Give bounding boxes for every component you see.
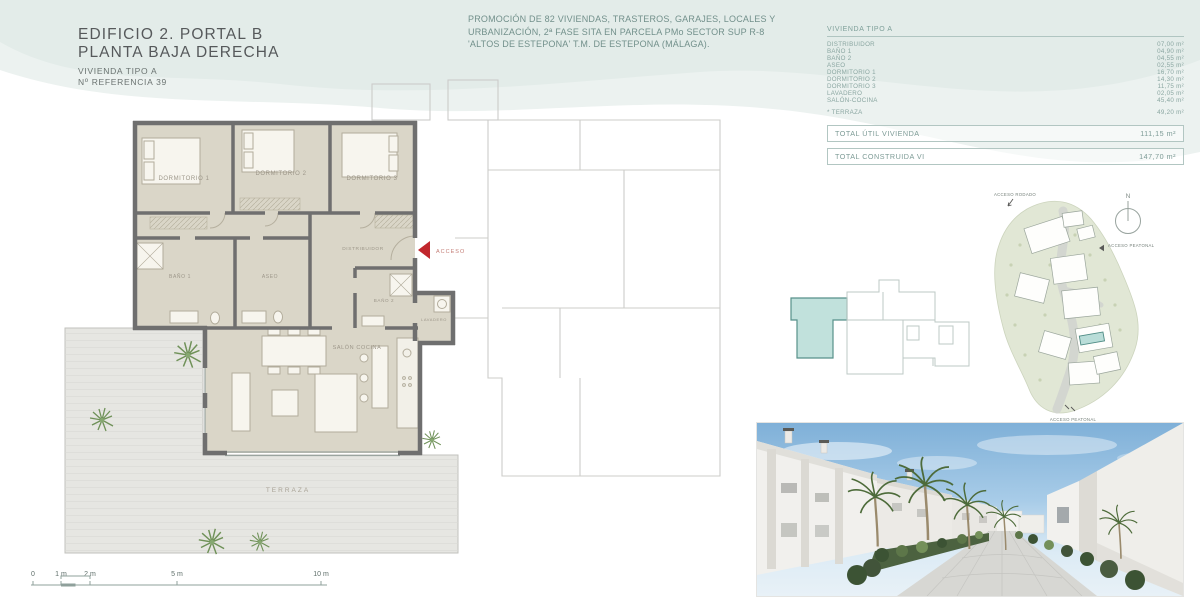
table-row: LAVADERO02,05 m²: [827, 90, 1184, 97]
floor-plan: DORMITORIO 1 DORMITORIO 2 DORMITORIO 3 B…: [20, 78, 740, 583]
table-row: ASEO02,55 m²: [827, 62, 1184, 69]
row-value: 04,90 m²: [1157, 48, 1184, 55]
row-label: BAÑO 1: [827, 48, 852, 55]
table-row: * TERRAZA49,20 m²: [827, 109, 1184, 116]
total-value: 111,15 m²: [1140, 129, 1176, 138]
vivienda-tipo: VIVIENDA TIPO A: [78, 66, 167, 77]
row-label: SALÓN-COCINA: [827, 97, 878, 104]
room-label-salon-cocina: SALÓN COCINA: [333, 344, 382, 351]
north-compass-icon: N: [1116, 193, 1141, 234]
north-label: N: [1126, 193, 1131, 200]
room-label-terraza: TERRAZA: [266, 487, 310, 494]
scale-segment: [61, 584, 76, 587]
adjacent-unit-outline: [372, 80, 720, 476]
room-label-distribuidor: DISTRIBUIDOR: [342, 246, 384, 252]
acceso-label: ACCESO: [436, 249, 465, 255]
acceso-marker: ACCESO: [418, 241, 465, 259]
table-row: DISTRIBUIDOR07,00 m²: [827, 41, 1184, 48]
plan-sheet: EDIFICIO 2. PORTAL B PLANTA BAJA DERECHA…: [0, 0, 1200, 602]
totals-section: TOTAL ÚTIL VIVIENDA111,15 m² TOTAL CONST…: [827, 125, 1184, 165]
page-title: EDIFICIO 2. PORTAL B PLANTA BAJA DERECHA: [78, 26, 280, 61]
room-label-dormitorio-1: DORMITORIO 1: [158, 176, 209, 182]
highlighted-unit: [791, 298, 847, 358]
table-row: SALÓN-COCINA45,40 m²: [827, 97, 1184, 104]
table-row: DORMITORIO 214,30 m²: [827, 76, 1184, 83]
table-row: BAÑO 104,90 m²: [827, 48, 1184, 55]
row-value: 11,75 m²: [1158, 83, 1184, 90]
scale-labels: 0 1 m 2 m 5 m 10 m: [31, 571, 329, 578]
total-row-util: TOTAL ÚTIL VIVIENDA111,15 m²: [827, 125, 1184, 142]
site-label-acceso-rodado: ACCESO RODADO: [994, 192, 1036, 197]
title-line-2: PLANTA BAJA DERECHA: [78, 44, 280, 62]
row-value: 02,05 m²: [1157, 90, 1184, 97]
area-table-header: VIVIENDA TIPO A: [827, 26, 1184, 37]
area-table: VIVIENDA TIPO A DISTRIBUIDOR07,00 m² BAÑ…: [827, 26, 1184, 165]
row-label: * TERRAZA: [827, 109, 863, 116]
room-label-lavadero: LAVADERO: [421, 317, 447, 322]
row-label: DORMITORIO 3: [827, 83, 876, 90]
room-label-bano-1: BAÑO 1: [169, 273, 191, 280]
total-value: 147,70 m²: [1139, 152, 1176, 161]
table-row: DORMITORIO 311,75 m²: [827, 83, 1184, 90]
acceso-arrow-icon: [418, 241, 430, 259]
site-label-acceso-peatonal-bottom: ACCESO PEATONAL: [1050, 417, 1097, 422]
row-value: 45,40 m²: [1157, 97, 1184, 104]
row-label: DORMITORIO 2: [827, 76, 876, 83]
room-label-dormitorio-3: DORMITORIO 3: [346, 176, 397, 182]
row-label: ASEO: [827, 62, 845, 69]
row-label: LAVADERO: [827, 90, 862, 97]
row-label: BAÑO 2: [827, 55, 852, 62]
total-label: TOTAL ÚTIL VIVIENDA: [835, 129, 920, 138]
row-value: 02,55 m²: [1157, 62, 1184, 69]
building-outline: [847, 280, 969, 374]
row-value: 16,70 m²: [1157, 69, 1184, 76]
total-row-construida: TOTAL CONSTRUIDA VI147,70 m²: [827, 148, 1184, 165]
promotion-text: PROMOCIÓN DE 82 VIVIENDAS, TRASTEROS, GA…: [468, 13, 820, 51]
site-plan: N ACCESO RODADO ACCESO PEATONAL ACCESO P…: [965, 185, 1190, 430]
promo-line-3: 'ALTOS DE ESTEPONA' T.M. DE ESTEPONA (MÁ…: [468, 38, 820, 51]
scale-bar: 0 1 m 2 m 5 m 10 m: [25, 565, 365, 597]
scale-tick-5m: 5 m: [171, 571, 183, 578]
exterior-render-photo: [757, 423, 1183, 596]
room-label-bano-2: BAÑO 2: [374, 297, 394, 303]
promo-line-1: PROMOCIÓN DE 82 VIVIENDAS, TRASTEROS, GA…: [468, 13, 820, 26]
row-label: DISTRIBUIDOR: [827, 41, 875, 48]
row-value: 49,20 m²: [1157, 109, 1184, 116]
key-plan: [783, 262, 978, 432]
row-label: DORMITORIO 1: [827, 69, 876, 76]
row-value: 07,00 m²: [1157, 41, 1184, 48]
room-label-dormitorio-2: DORMITORIO 2: [255, 171, 306, 177]
scale-tick-10m: 10 m: [313, 571, 329, 578]
promo-line-2: URBANIZACIÓN, 2ª FASE SITA EN PARCELA PM…: [468, 26, 820, 39]
scale-tick-0: 0: [31, 571, 35, 578]
title-line-1: EDIFICIO 2. PORTAL B: [78, 26, 280, 44]
table-row: DORMITORIO 116,70 m²: [827, 69, 1184, 76]
room-label-aseo: ASEO: [262, 274, 278, 280]
table-row: BAÑO 204,55 m²: [827, 55, 1184, 62]
row-value: 14,30 m²: [1157, 76, 1184, 83]
total-label: TOTAL CONSTRUIDA VI: [835, 152, 925, 161]
row-value: 04,55 m²: [1157, 55, 1184, 62]
site-label-acceso-peatonal-top: ACCESO PEATONAL: [1108, 243, 1155, 248]
